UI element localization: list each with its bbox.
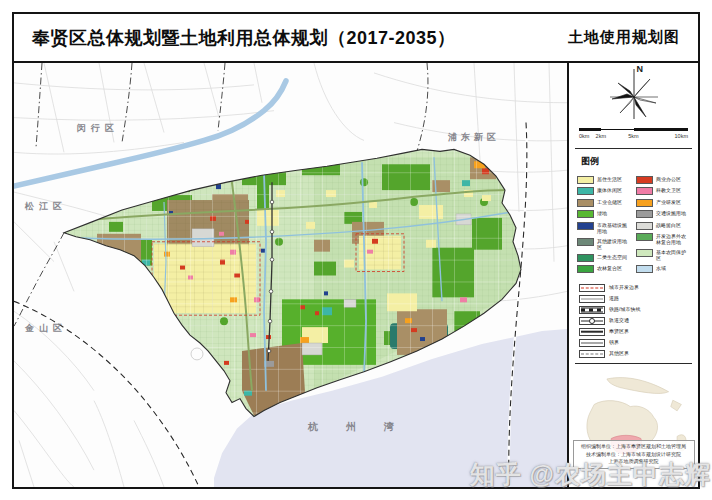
legend-swatch: [636, 187, 653, 195]
legend-item: 科教文卫区: [636, 187, 690, 195]
legend-swatch: [636, 199, 653, 207]
legend-item: 康体休闲区: [577, 187, 631, 195]
legend-line-label: 其他区界: [609, 350, 629, 356]
scale-segment: [601, 129, 634, 130]
legend-item-label: 产业研发区: [656, 199, 681, 205]
legend-item-label: 其他建设用地区: [597, 238, 631, 251]
region-label: 金山区: [24, 323, 67, 333]
sheet-content: 闵行区浦东新区松江区金山区杭州湾 N: [14, 63, 698, 487]
legend-item-label: 交通设施用地: [656, 210, 686, 216]
legend-line-item: 其他区界: [579, 350, 688, 358]
sheet-header: 奉贤区总体规划暨土地利用总体规划（2017-2035） 土地使用规划图: [14, 14, 698, 63]
other-boundary-symbol: [579, 350, 605, 358]
legend-item: 二类生态空间: [577, 254, 631, 262]
scale-bar-segments: [579, 127, 688, 132]
legend-item-label: 工业仓储区: [597, 199, 622, 205]
legend-item-label: 商业办公区: [656, 176, 681, 182]
legend-item-label: 二类生态空间: [597, 254, 627, 260]
legend-item-label: 居住生活区: [597, 176, 622, 182]
legend-item-label: 战略留白区: [656, 222, 681, 228]
legend-item: 绿地: [577, 210, 631, 218]
page: { "header": { "title": "奉贤区总体规划暨土地利用总体规划…: [0, 0, 712, 500]
legend-swatch: [636, 233, 653, 241]
legend-swatch: [636, 222, 653, 230]
legend-item-label: 基本农田保护区: [656, 249, 690, 262]
watermark: 知乎 @农场主中志辉: [470, 458, 711, 491]
legend-item: 基本农田保护区: [636, 249, 690, 262]
legend-item: 水域: [636, 265, 690, 273]
map-name-title: 土地使用规划图: [568, 28, 680, 47]
region-label: 闵行区: [77, 123, 119, 133]
sidebar-divider: [575, 148, 692, 149]
legend-item-label: 开发边界外农林复合用地: [656, 233, 690, 246]
legend-title: 图例: [569, 151, 698, 170]
compass: N: [569, 63, 698, 125]
planning-map-canvas: 闵行区浦东新区松江区金山区杭州湾: [14, 63, 567, 487]
railway-symbol: [579, 306, 605, 314]
legend-line-item: 铁路/城市快线: [579, 306, 688, 314]
legend-lines: 城市开发边界道路铁路/城市快线轨道交通奉贤区界镇界其他区界: [569, 277, 698, 361]
legend-swatch: [636, 265, 653, 273]
legend-line-label: 奉贤区界: [609, 328, 629, 334]
region-label: 浦东新区: [447, 132, 500, 142]
credit-line: 组织编制单位：上海市奉贤区规划和土地管理局: [575, 443, 693, 451]
legend-swatch: [636, 176, 653, 184]
legend-line-label: 铁路/城市快线: [609, 306, 640, 312]
scale-segment: [634, 128, 689, 131]
legend-zone-column-left: 居住生活区康体休闲区工业仓储区绿地市政基础设施用地其他建设用地区二类生态空间农林…: [577, 172, 631, 277]
map-area: 闵行区浦东新区松江区金山区杭州湾: [14, 63, 567, 487]
red-dash-box-symbol: [579, 284, 605, 292]
legend-line-label: 城市开发边界: [609, 284, 639, 290]
legend-item: 工业仓储区: [577, 199, 631, 207]
legend-line-item: 轨道交通: [579, 317, 688, 325]
legend-item: 商业办公区: [636, 176, 690, 184]
legend-item: 市政基础设施用地: [577, 222, 631, 235]
scale-bar: 0km2km5km10km: [569, 125, 698, 146]
legend-item: 战略留白区: [636, 222, 690, 230]
legend-swatch: [577, 238, 594, 246]
chongming-island: [607, 377, 669, 393]
small-island: [671, 400, 682, 411]
compass-north-label: N: [637, 64, 644, 74]
road-symbol: [579, 295, 605, 303]
legend-line-label: 轨道交通: [609, 317, 629, 323]
map-sidebar: N: [567, 63, 698, 487]
legend-line-label: 镇界: [609, 339, 619, 345]
legend-swatch: [577, 210, 594, 218]
plan-title: 奉贤区总体规划暨土地利用总体规划（2017-2035）: [32, 26, 456, 50]
legend-line-item: 奉贤区界: [579, 328, 688, 336]
legend-swatch: [577, 222, 594, 230]
district-boundary-symbol: [579, 328, 605, 336]
town-boundary-symbol: [579, 339, 605, 347]
compass-rose-icon: [602, 65, 666, 123]
legend-item-label: 农林复合区: [597, 265, 622, 271]
legend-swatch: [636, 249, 653, 257]
legend-item: 居住生活区: [577, 176, 631, 184]
legend-swatch: [577, 176, 594, 184]
legend-swatch: [636, 210, 653, 218]
legend-item: 交通设施用地: [636, 210, 690, 218]
legend-line-label: 道路: [609, 295, 619, 301]
scale-tick-label: 0km: [579, 133, 589, 139]
scale-tick-labels: 0km2km5km10km: [579, 133, 688, 142]
legend-item: 其他建设用地区: [577, 238, 631, 251]
legend-swatch: [577, 265, 594, 273]
legend-item-label: 市政基础设施用地: [597, 222, 631, 235]
legend-item: 开发边界外农林复合用地: [636, 233, 690, 246]
legend-swatch: [577, 187, 594, 195]
region-label: 松江区: [24, 201, 67, 211]
region-label: 杭州湾: [307, 421, 422, 432]
legend-zones: 居住生活区康体休闲区工业仓储区绿地市政基础设施用地其他建设用地区二类生态空间农林…: [569, 170, 698, 277]
map-sheet: 奉贤区总体规划暨土地利用总体规划（2017-2035） 土地使用规划图: [12, 12, 700, 489]
legend-line-item: 镇界: [579, 339, 688, 347]
legend-item-label: 水域: [656, 265, 666, 271]
legend-item-label: 科教文卫区: [656, 187, 681, 193]
scale-tick-label: 2km: [596, 133, 606, 139]
legend-item: 产业研发区: [636, 199, 690, 207]
legend-swatch: [577, 199, 594, 207]
legend-item: 农林复合区: [577, 265, 631, 273]
legend-item-label: 绿地: [597, 210, 607, 216]
sidebar-divider: [575, 363, 692, 364]
legend-line-item: 城市开发边界: [579, 284, 688, 292]
scale-tick-label: 5km: [628, 133, 638, 139]
scale-segment: [579, 128, 601, 131]
scale-tick-label: 10km: [675, 133, 688, 139]
legend-zone-column-right: 商业办公区科教文卫区产业研发区交通设施用地战略留白区开发边界外农林复合用地基本农…: [636, 172, 690, 277]
legend-item-label: 康体休闲区: [597, 187, 622, 193]
legend-swatch: [577, 254, 594, 262]
metro-symbol: [579, 317, 605, 325]
legend-line-item: 道路: [579, 295, 688, 303]
